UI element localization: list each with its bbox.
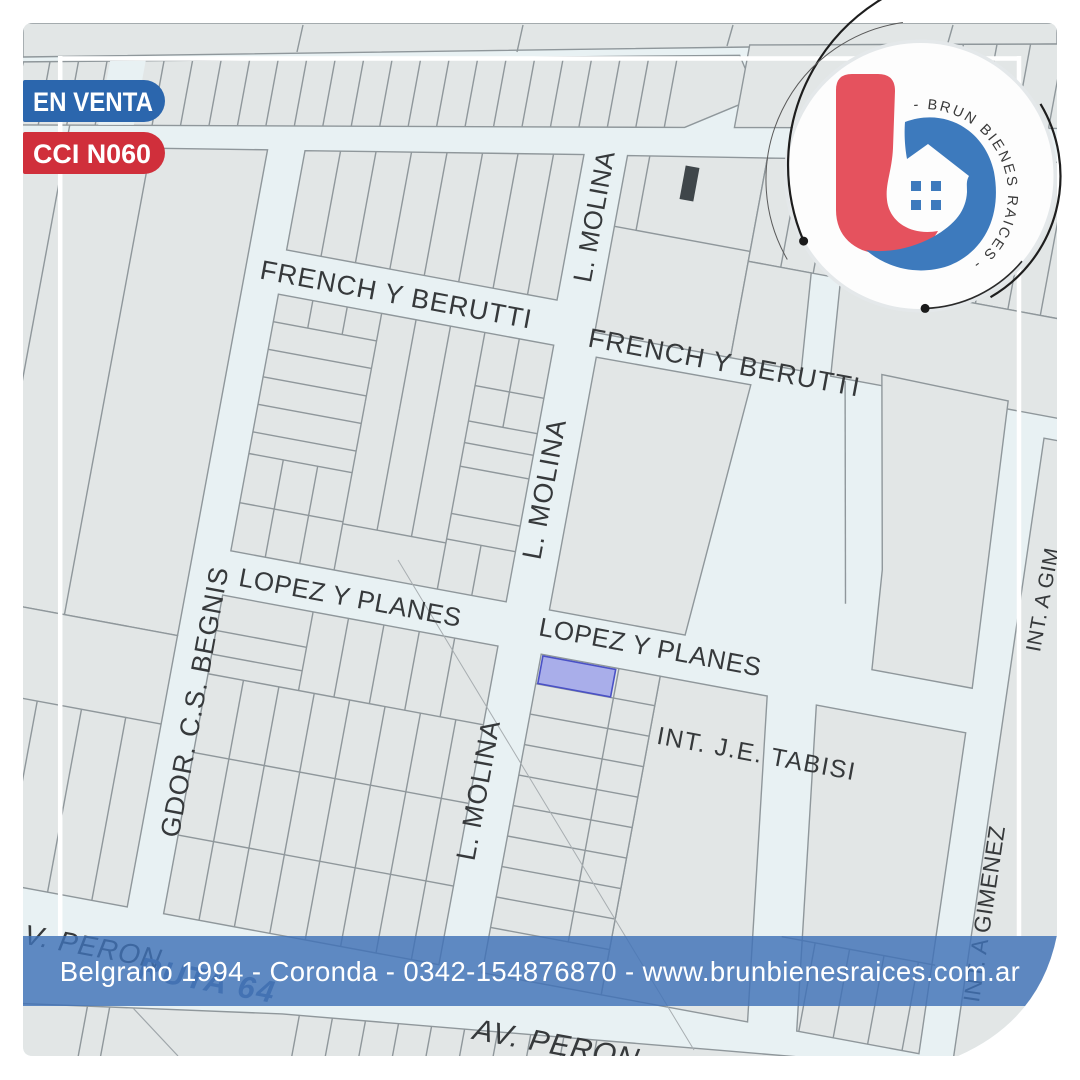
svg-text:EN VENTA: EN VENTA [33, 87, 153, 117]
svg-text:Belgrano 1994 - Coronda - 0342: Belgrano 1994 - Coronda - 0342-154876870… [60, 956, 1021, 987]
svg-text:CCI N060: CCI N060 [33, 139, 151, 169]
